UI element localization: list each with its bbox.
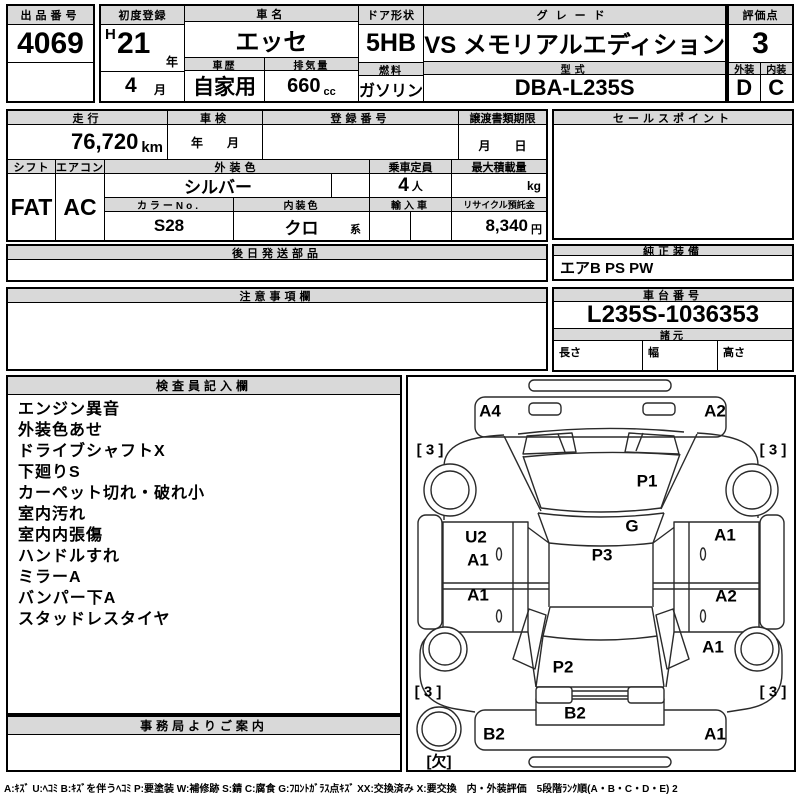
width-label: 幅 (648, 347, 659, 359)
damage-code-legend: A:ｷｽﾞ U:ﾍｺﾐ B:ｷｽﾞを伴うﾍｺﾐ P:要塗装 W:補修跡 S:錆 … (4, 780, 798, 795)
displacement-value: 660 cc (265, 71, 358, 101)
inspector-notes-list: エンジン異音外装色あせドライブシャフトX下廻りSカーペット切れ・破れ小室内汚れ室… (8, 395, 400, 634)
reg-number-cell: 登録番号 (263, 111, 459, 159)
equipment-label: 純正装備 (554, 246, 792, 256)
interior-label: 内装 (761, 63, 793, 75)
first-registration-label: 初度登録 (101, 6, 184, 25)
recycle-value: 8,340 円 (452, 212, 546, 240)
damage-mark-rear-bumper-left: B2 (483, 726, 505, 743)
capacity-number: 4 (398, 175, 409, 197)
vehicle-header-box: 初度登録 H 21 年 4 月 車名 エッセ 車歴 自家用 排気量 660 cc (99, 4, 727, 103)
lot-empty-cell (8, 63, 93, 101)
damage-mark-front-bumper-right: A2 (704, 403, 726, 420)
int-color-suffix: 系 (350, 221, 361, 237)
capacity-unit: 人 (412, 178, 423, 197)
reg-number-label: 登録番号 (263, 111, 458, 125)
import-label: 輸入車 (370, 198, 451, 212)
tire-depth-rear-left: [ 3 ] (415, 685, 442, 700)
transfer-deadline-label: 譲渡書類期限 (459, 111, 546, 125)
height-label: 高さ (723, 347, 745, 359)
color-no-label: カラーNo. (105, 198, 234, 212)
door-shape-label: ドア形状 (359, 6, 423, 25)
fuel-label: 燃料 (359, 63, 423, 76)
inspector-note: ハンドルすれ (18, 546, 390, 567)
recycle-number: 8,340 (485, 216, 528, 236)
car-name-label: 車名 (185, 6, 358, 22)
color-no-value: S28 (105, 212, 234, 240)
inspector-note: 外装色あせ (18, 420, 390, 441)
damage-mark-windshield: G (625, 518, 638, 535)
spare-tire-missing-mark: [欠] (427, 755, 452, 770)
int-color-label: 内装色 (234, 198, 369, 212)
color-cell: 外装色 シルバー カラーNo. 内装色 S28 クロ 系 (105, 160, 370, 240)
damage-mark-front-bumper-left: A4 (479, 403, 501, 420)
month-suffix: 月 (154, 81, 166, 98)
door-shape-value: 5HB (359, 25, 423, 62)
interior-grade-value: C (761, 75, 793, 101)
office-box: 事務局よりご案内 (6, 715, 402, 772)
ext-color-label: 外装色 (105, 160, 369, 174)
first-registration-year: H 21 年 (101, 25, 184, 71)
mileage-label: 走行 (8, 111, 167, 125)
caution-label: 注意事項欄 (8, 289, 546, 303)
score-value: 3 (729, 25, 792, 62)
grade-value: VS メモリアルエディション (424, 25, 725, 61)
later-parts-box: 後日発送部品 (6, 244, 548, 282)
int-color-value: クロ 系 (234, 212, 369, 240)
ext-color-empty-cell (331, 174, 369, 197)
inspector-note: 室内内張傷 (18, 525, 390, 546)
damage-mark-right-quarter: A1 (702, 639, 724, 656)
chassis-box: 車台番号 L235S-1036353 諸元 長さ 幅 高さ (552, 287, 794, 372)
sales-point-label: セールスポイント (554, 111, 792, 125)
model-code-label: 型式 (424, 62, 725, 75)
inspector-note: バンパー下A (18, 588, 390, 609)
max-load-unit: kg (527, 179, 541, 193)
aircon-cell: エアコン AC (56, 160, 105, 240)
tire-depth-front-left: [ 3 ] (417, 443, 444, 458)
grade-cell: グレード VS メモリアルエディション 型式 DBA-L235S (424, 6, 725, 101)
office-content (8, 735, 400, 770)
damage-mark-roof: P3 (592, 547, 613, 564)
era-mark: H (105, 26, 116, 43)
inspector-note: 室内汚れ (18, 504, 390, 525)
reg-month-value: 4 (125, 74, 137, 98)
damage-mark-left-front-door-upper: U2 (465, 529, 487, 546)
damage-mark-tailgate: P2 (553, 659, 574, 676)
history-cell: 車歴 自家用 (185, 58, 265, 101)
first-registration-month: 4 月 (101, 71, 184, 101)
later-parts-label: 後日発送部品 (8, 246, 546, 260)
first-registration-cell: 初度登録 H 21 年 4 月 (101, 6, 185, 101)
car-diagram: A4A2P1GU2A1A1P3A1A2A1P2B2B2A1[ 3 ][ 3 ][… (408, 377, 794, 770)
damage-mark-left-front-door: A1 (467, 552, 489, 569)
inspector-note: 下廻りS (18, 462, 390, 483)
mileage-value: 76,720 km (8, 125, 167, 159)
int-color-name: クロ (285, 214, 319, 239)
mileage-unit: km (141, 139, 163, 159)
max-load-label: 最大積載量 (452, 160, 546, 174)
grade-label: グレード (424, 6, 725, 25)
max-load-value: kg (452, 174, 546, 198)
reg-number-value (263, 125, 458, 159)
spec-width-cell: 幅 (643, 341, 718, 370)
inspector-note: ミラーA (18, 567, 390, 588)
lot-number-value: 4069 (8, 25, 93, 63)
load-cell: 最大積載量 kg リサイクル預託金 8,340 円 (452, 160, 546, 240)
caution-box: 注意事項欄 (6, 287, 548, 371)
capacity-value: 4 人 (370, 174, 451, 198)
displacement-unit: cc (323, 86, 335, 101)
displacement-label: 排気量 (265, 58, 358, 71)
car-name-value: エッセ (185, 22, 358, 57)
door-shape-cell: ドア形状 5HB 燃料 ガソリン (359, 6, 424, 101)
damage-mark-right-rear-door: A2 (715, 588, 737, 605)
mileage-number: 76,720 (71, 129, 138, 155)
score-label: 評価点 (729, 6, 792, 25)
specs-label: 諸元 (554, 329, 792, 341)
lot-number-box: 出品番号 4069 (6, 4, 95, 103)
damage-mark-right-front-door: A1 (714, 527, 736, 544)
damage-mark-tailgate-lower: B2 (564, 705, 586, 722)
aircon-label: エアコン (56, 160, 104, 174)
score-box: 評価点 3 外装 内装 D C (727, 4, 794, 103)
recycle-label: リサイクル預託金 (452, 198, 546, 212)
history-label: 車歴 (185, 58, 264, 71)
inspector-note: ドライブシャフトX (18, 441, 390, 462)
caution-content (8, 303, 546, 369)
displacement-number: 660 (287, 75, 320, 98)
length-label: 長さ (559, 347, 581, 359)
shift-value: FAT (8, 174, 55, 240)
car-name-cell: 車名 エッセ 車歴 自家用 排気量 660 cc (185, 6, 359, 101)
inspector-label: 検査員記入欄 (8, 377, 400, 395)
sales-point-box: セールスポイント (552, 109, 794, 240)
aircon-value: AC (56, 174, 104, 240)
chassis-value: L235S-1036353 (554, 302, 792, 329)
equipment-box: 純正装備 エアB PS PW (552, 244, 794, 281)
import-empty-cell-2 (411, 212, 452, 240)
shift-cell: シフト FAT (8, 160, 56, 240)
exterior-grade-value: D (729, 75, 761, 101)
mileage-cell: 走行 76,720 km (8, 111, 168, 159)
inspector-note: エンジン異音 (18, 399, 390, 420)
damage-mark-hood: P1 (637, 473, 658, 490)
sales-point-content (554, 125, 792, 238)
details-box: 走行 76,720 km 車検 年 月 登録番号 譲渡書類期限 月 日 シフト … (6, 109, 548, 242)
auction-sheet: { "top": { "lot_label": "出品番号", "lot_num… (0, 0, 800, 800)
exterior-label: 外装 (729, 63, 761, 75)
spec-length-cell: 長さ (554, 341, 643, 370)
inspector-note: スタッドレスタイヤ (18, 609, 390, 630)
tire-depth-rear-right: [ 3 ] (760, 685, 787, 700)
transfer-deadline-value: 月 日 (459, 125, 546, 159)
fuel-value: ガソリン (359, 76, 423, 101)
recycle-unit: 円 (531, 221, 542, 240)
inspection-cell: 車検 年 月 (168, 111, 263, 159)
transfer-deadline-cell: 譲渡書類期限 月 日 (459, 111, 546, 159)
year-suffix: 年 (166, 53, 178, 70)
inspection-label: 車検 (168, 111, 262, 125)
reg-year-value: 21 (117, 27, 150, 61)
capacity-cell: 乗車定員 4 人 輸入車 (370, 160, 452, 240)
damage-diagram-box: A4A2P1GU2A1A1P3A1A2A1P2B2B2A1[ 3 ][ 3 ][… (406, 375, 796, 772)
shift-label: シフト (8, 160, 55, 174)
spec-height-cell: 高さ (718, 341, 792, 370)
history-value: 自家用 (185, 71, 264, 101)
inspection-value: 年 月 (168, 125, 262, 159)
tire-depth-front-right: [ 3 ] (760, 443, 787, 458)
model-code-value: DBA-L235S (424, 75, 725, 101)
inspector-box: 検査員記入欄 エンジン異音外装色あせドライブシャフトX下廻りSカーペット切れ・破… (6, 375, 402, 715)
equipment-value: エアB PS PW (554, 256, 792, 279)
damage-mark-rear-bumper-right: A1 (704, 726, 726, 743)
lot-number-label: 出品番号 (8, 6, 93, 25)
damage-marks-overlay: A4A2P1GU2A1A1P3A1A2A1P2B2B2A1[ 3 ][ 3 ][… (408, 377, 794, 770)
import-empty-cell-1 (370, 212, 411, 240)
office-label: 事務局よりご案内 (8, 717, 400, 735)
damage-mark-left-rear-door: A1 (467, 587, 489, 604)
displacement-cell: 排気量 660 cc (265, 58, 358, 101)
later-parts-content (8, 260, 546, 280)
capacity-label: 乗車定員 (370, 160, 451, 174)
ext-color-value: シルバー (105, 174, 331, 197)
inspector-note: カーペット切れ・破れ小 (18, 483, 390, 504)
